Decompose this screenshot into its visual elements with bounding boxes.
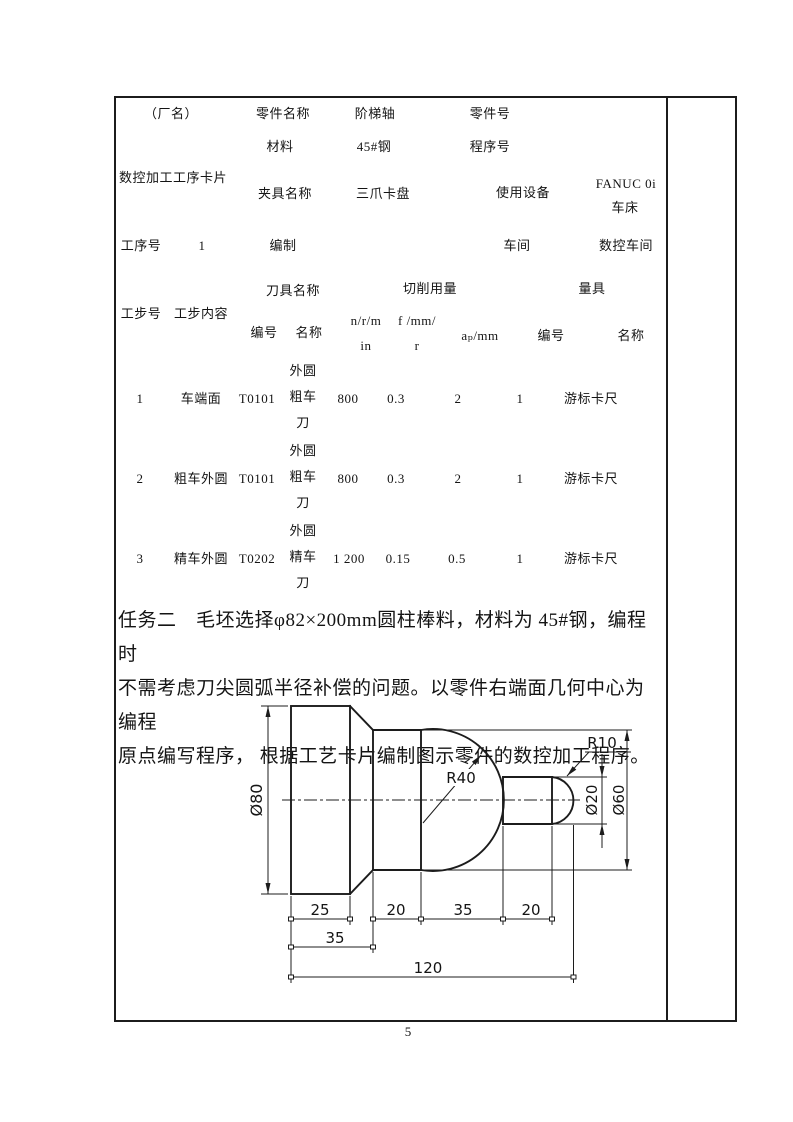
cell-step-content: 精车外圆: [174, 551, 228, 566]
group-tool-name: 刀具名称: [266, 283, 320, 298]
cell-feed: 0.3: [387, 471, 405, 486]
part-name-value: 阶梯轴: [355, 106, 396, 121]
program-no-label: 程序号: [470, 139, 511, 154]
col-spindle-speed: n/r/m in: [351, 308, 382, 358]
equipment-value-line1: FANUC 0i: [596, 176, 656, 191]
cell-ap: 0.5: [448, 551, 466, 566]
cell-tool-no: T0101: [239, 471, 275, 486]
page-number: 5: [405, 1024, 412, 1040]
cell-tool-name: 外圆 精车 刀: [289, 518, 316, 596]
equipment-value-line2: 车床: [611, 200, 638, 215]
part-name-label: 零件名称: [256, 106, 310, 121]
compiled-by-label: 编制: [269, 238, 296, 253]
col-gauge-name: 名称: [617, 328, 644, 343]
fixture-label: 夹具名称: [258, 186, 312, 201]
cell-gauge-no: 1: [517, 551, 524, 566]
dim-label-dia60: Ø60: [610, 785, 628, 816]
material-label: 材料: [266, 139, 293, 154]
cell-gauge-no: 1: [517, 391, 524, 406]
col-step-no: 工步号: [121, 306, 162, 321]
workshop-value: 数控车间: [599, 238, 653, 253]
col-gauge-no: 编号: [537, 328, 564, 343]
dim-label-r10: R10: [587, 734, 617, 752]
dim-r40: R40: [423, 755, 481, 823]
part-no-label: 零件号: [470, 106, 511, 121]
dim-length-row2: 35: [289, 929, 376, 949]
cell-tool-name: 外圆 粗车 刀: [289, 358, 316, 436]
dim-length-row3: 120: [289, 959, 577, 979]
cell-tool-no: T0101: [239, 391, 275, 406]
group-cutting-params: 切削用量: [403, 281, 457, 296]
document-page: （厂名） 数控加工工序卡片 零件名称 阶梯轴 零件号 材料 45#钢 程序号 夹…: [0, 0, 793, 1122]
cell-step-no: 1: [137, 391, 144, 406]
dim-label-20a: 20: [386, 901, 405, 919]
workshop-label: 车间: [503, 238, 530, 253]
cell-ap: 2: [455, 391, 462, 406]
cell-gauge-no: 1: [517, 471, 524, 486]
dim-dia20: Ø20: [552, 754, 607, 848]
cell-step-content: 粗车外圆: [174, 471, 228, 486]
cell-step-no: 2: [137, 471, 144, 486]
cell-tool-name: 外圆 粗车 刀: [289, 438, 316, 516]
dim-label-r40: R40: [446, 769, 476, 787]
part-drawing: Ø80 Ø60 Ø20 R40: [230, 690, 650, 1000]
cell-gauge-name: 游标卡尺: [564, 391, 618, 406]
cell-feed: 0.3: [387, 391, 405, 406]
col-depth-of-cut: aₚ/mm: [461, 328, 498, 343]
cell-spindle: 800: [338, 391, 359, 406]
cell-step-content: 车端面: [181, 391, 222, 406]
cell-spindle: 800: [338, 471, 359, 486]
cell-tool-no: T0202: [239, 551, 275, 566]
dim-label-dia80: Ø80: [247, 784, 266, 817]
process-no-value: 1: [199, 238, 206, 253]
dim-r10: R10: [567, 734, 631, 776]
col-feed: f /mm/ r: [398, 308, 436, 358]
cell-spindle: 1 200: [333, 551, 365, 566]
fixture-value: 三爪卡盘: [356, 186, 410, 201]
dim-label-20b: 20: [521, 901, 540, 919]
card-title: 数控加工工序卡片: [119, 170, 227, 185]
factory-name-label: （厂名）: [144, 106, 198, 121]
right-column-divider: [666, 98, 668, 1020]
dim-label-120: 120: [414, 959, 443, 977]
group-gauge: 量具: [578, 281, 605, 296]
dim-label-35b: 35: [325, 929, 344, 947]
cell-feed: 0.15: [386, 551, 411, 566]
dim-label-dia20: Ø20: [583, 785, 601, 816]
process-no-label: 工序号: [121, 238, 162, 253]
cell-gauge-name: 游标卡尺: [564, 471, 618, 486]
col-step-content: 工步内容: [174, 306, 228, 321]
cell-ap: 2: [455, 471, 462, 486]
dim-label-35a: 35: [453, 901, 472, 919]
cell-gauge-name: 游标卡尺: [564, 551, 618, 566]
equipment-label: 使用设备: [496, 185, 550, 200]
cell-step-no: 3: [137, 551, 144, 566]
col-tool-no: 编号: [250, 325, 277, 340]
dim-dia80: Ø80: [247, 706, 288, 894]
col-tool-name: 名称: [295, 325, 322, 340]
dim-label-25: 25: [310, 901, 329, 919]
material-value: 45#钢: [357, 139, 392, 154]
